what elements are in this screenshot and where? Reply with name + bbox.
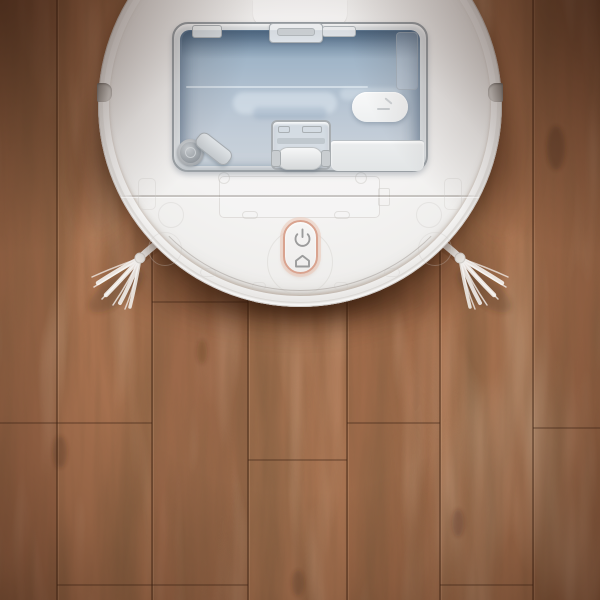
mop-roller — [277, 147, 323, 170]
filter-pill-mark — [377, 108, 390, 110]
filter-pill — [352, 92, 408, 122]
white-reservoir-block — [331, 140, 424, 171]
rim-notch-right — [488, 83, 503, 102]
roller-cap — [321, 150, 331, 167]
roller-cap — [271, 150, 281, 167]
water-ripple — [253, 107, 327, 119]
rim-notch-left — [97, 83, 112, 102]
housing-detail — [302, 126, 322, 133]
power-icon — [296, 230, 310, 246]
housing-bar — [277, 138, 325, 144]
tank-latch-bar — [322, 26, 356, 37]
filter-cap-ring — [185, 147, 196, 158]
tank-side-channel — [396, 32, 418, 90]
water-line — [186, 86, 368, 88]
tank-side-latch — [192, 25, 222, 38]
control-button-pill — [283, 220, 318, 274]
housing-detail — [278, 126, 290, 133]
scene-photo — [0, 0, 600, 600]
home-icon — [296, 256, 309, 267]
tank-latch-slot — [277, 28, 315, 36]
